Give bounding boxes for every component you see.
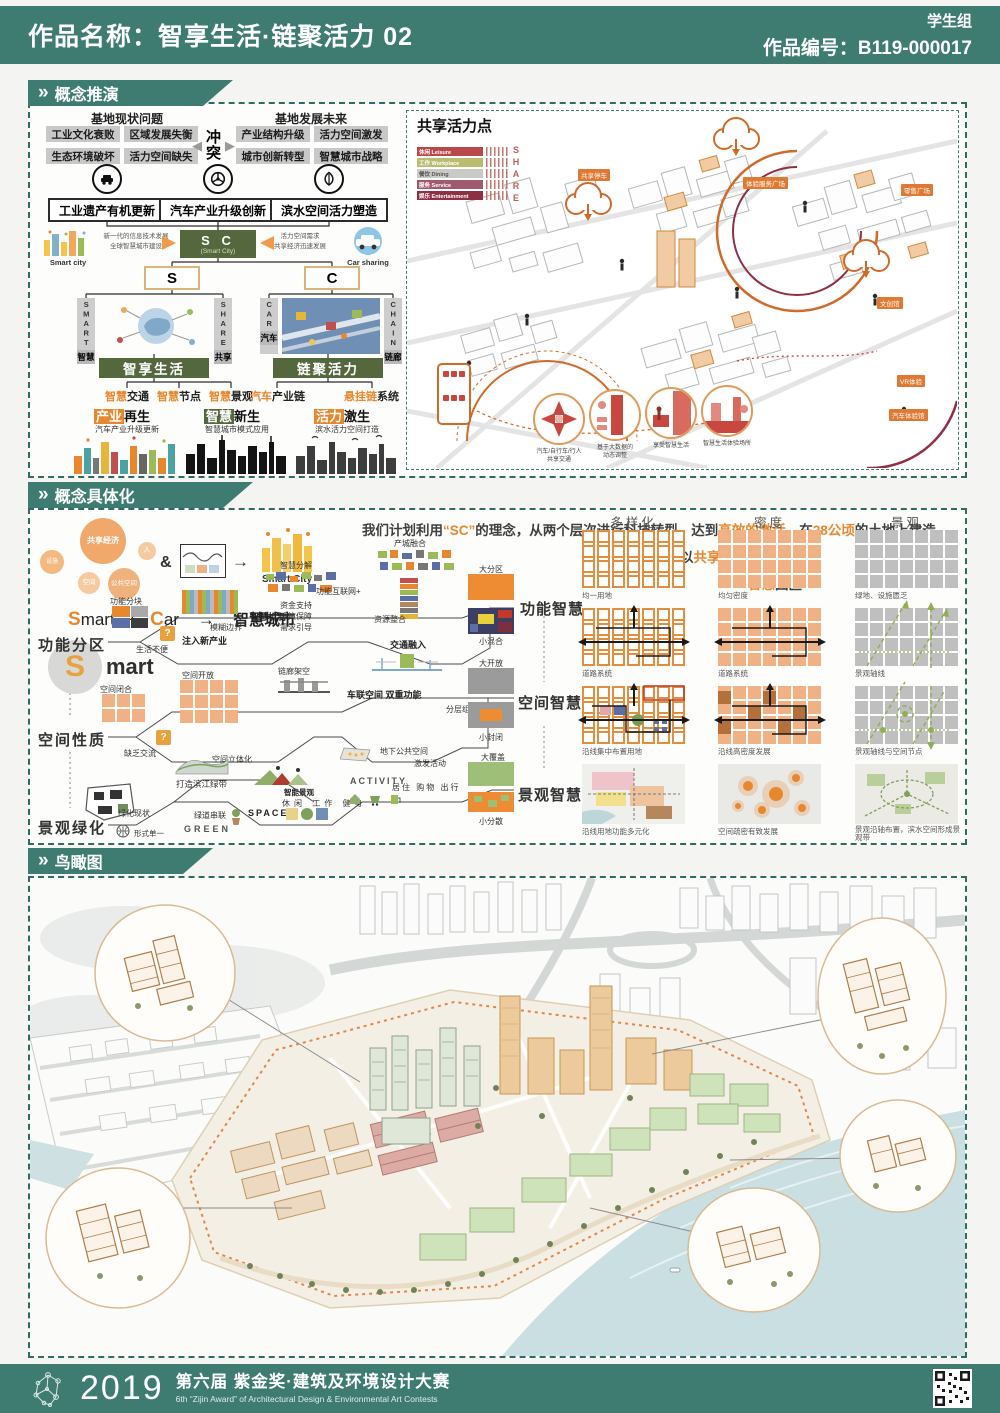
flow-chart-box (180, 544, 226, 578)
matrix-header: 密度 (718, 512, 821, 531)
future-item: 产业结构升级 (236, 126, 310, 142)
bubble: 人 (138, 542, 156, 560)
sc-label: S C (201, 233, 235, 248)
section-banner-concept-deduction: » 概念推演 (28, 80, 233, 106)
result-chip-scatter (468, 792, 514, 812)
legend-swatch: 休闲 Leisure (417, 147, 483, 156)
work-code: 作品编号：B119-000017 (763, 33, 972, 60)
matrix-caption: 景观轴线与空间节点 (855, 748, 965, 756)
zijin-award-logo (26, 1367, 70, 1411)
vignette-big-data (589, 389, 641, 441)
c-letter-box: C (304, 266, 360, 290)
steering-wheel-icon (203, 164, 233, 194)
matrix-caption: 沿线高密度发展 (718, 748, 828, 756)
sc-box: S C (Smart City) (180, 230, 256, 258)
matrix-caption: 景观沿轴布置，滨水空间形成景观带 (855, 826, 965, 843)
flow-node: 绿化现状 (118, 808, 150, 819)
problem-item: 活力空间缺失 (124, 148, 198, 164)
chain-item: 悬挂链系统 (344, 388, 399, 404)
outcome-title: 活力激生 (314, 406, 370, 425)
vignette-waterfront (701, 385, 753, 437)
activity-icons (348, 792, 402, 806)
mosaic-icon (376, 548, 460, 574)
road-overlay (574, 602, 694, 672)
matrix-caption: 空间疏密有致发展 (718, 828, 828, 836)
green-hill-icon (254, 764, 310, 786)
flow-node: 政策保障 (280, 611, 312, 622)
row-label: 空间性质 (38, 729, 106, 750)
arrow-right-icon: → (232, 552, 249, 572)
skyline-black (182, 434, 292, 474)
flow-node: 智能景观 (284, 787, 314, 798)
section-title: 概念推演 (55, 81, 119, 105)
result-chip-caption: 小混合 (468, 636, 514, 647)
qr-code (933, 1369, 972, 1408)
panel-birdview (28, 876, 967, 1358)
footer-year: 2019 (80, 1369, 164, 1408)
outcome-title: 产业再生 (94, 406, 150, 425)
result-chip (468, 702, 514, 728)
matrix-caption: 沿线集中布置用地 (582, 748, 692, 756)
flow-node: 资金支持 (280, 600, 312, 611)
matrix-grid (855, 530, 958, 588)
photo-frame-icon (340, 746, 372, 763)
result-chip (468, 574, 514, 600)
theme-smart-life: 智享生活 (99, 358, 209, 378)
matrix-caption: 均一用地 (582, 592, 692, 600)
car-sharing-illustration (342, 226, 394, 256)
flow-node: 模糊边界 (210, 622, 242, 633)
question-icon: ? (156, 730, 171, 745)
phone-illustration (437, 363, 471, 425)
plan-density (718, 764, 821, 824)
outcome-title: 智慧新生 (204, 406, 260, 425)
conflict-block: ◀ 冲突 ▶ (192, 130, 235, 162)
panel-concept-concrete: 我们计划利用“SC”的理念，从两个层次进行科技转型，达到高效的激活，在28公顷的… (28, 508, 967, 845)
question-icon: ? (160, 626, 175, 641)
skyline-gray (292, 434, 402, 474)
axis-node-overlay (847, 674, 967, 750)
ampersand: & (160, 554, 172, 572)
big-s-rest: mart (106, 654, 154, 680)
s-letter-box: S (144, 266, 200, 290)
pillar-chain: CHAIN 链廊 (384, 298, 402, 354)
result-chip-caption: 小封闭 (468, 732, 514, 743)
closed-grid-icon (102, 694, 145, 722)
future-item: 智慧城市战略 (314, 148, 388, 164)
result-chip-mosaic (468, 608, 514, 634)
legend-row: 娱乐 Entertainment (417, 191, 510, 200)
problem-item: 工业文化衰败 (46, 126, 120, 142)
vignette-caption: 基于大数据的 动态调整 (583, 445, 647, 461)
arrow-right-icon (162, 236, 176, 250)
chevron-icon: » (38, 484, 47, 506)
legend-row: 餐饮 Dining (417, 169, 510, 178)
bubble: 空间 (78, 572, 100, 594)
flow-node: 车联空间 双重功能 (347, 688, 422, 701)
plant-pot-icon (229, 808, 243, 826)
flow-node: 绿道串联 (194, 810, 226, 821)
legend-hatch (486, 147, 510, 156)
flow-node: 注入新产业 (182, 634, 227, 647)
chain-conveyor-illustration (282, 298, 380, 354)
flow-node: 缺乏交流 (124, 748, 156, 759)
flow-node: 地下公共空间 (380, 746, 428, 757)
matrix-caption: 均匀密度 (718, 592, 828, 600)
row-label: 功能分区 (38, 634, 106, 655)
chevron-icon: » (38, 850, 47, 872)
problem-item: 区域发展失衡 (124, 126, 198, 142)
skyline-colorful (72, 434, 182, 474)
pillar-smart: SMART 智慧 (77, 298, 95, 354)
legend-swatch: 工作 Workplace (417, 158, 483, 167)
building-tag: 汽车体验馆 (889, 409, 928, 421)
share-vitality-panel: 共享活力点 休闲 Leisure 工作 Workplace 餐饮 Dining … (406, 110, 959, 470)
concept-flowchart: 基地现状问题 基地发展未来 工业文化衰败 区域发展失衡 生态环境破坏 活力空间缺… (32, 106, 404, 474)
space-icons (286, 808, 328, 820)
transit-section-icon (372, 650, 442, 674)
result-chip (468, 762, 514, 786)
flow-node: 激发活动 (414, 758, 446, 769)
legend-swatch: 餐饮 Dining (417, 169, 483, 178)
vignette-smart-life (645, 387, 697, 439)
legend-row: 工作 Workplace (417, 158, 510, 167)
concept-concrete-content: 我们计划利用“SC”的理念，从两个层次进行科技转型，达到高效的激活，在28公顷的… (32, 512, 963, 841)
arrow-right-icon: ▶ (225, 138, 235, 154)
building-tag: 共享停车 (578, 169, 610, 181)
theme-chain-vitality: 链聚活力 (273, 358, 383, 378)
legend-row: 服务 Service (417, 180, 510, 189)
sc-sublabel: (Smart City) (201, 248, 236, 255)
matrix-header: 景观 (855, 512, 958, 531)
matrix-caption: 沿线用地功能多元化 (582, 828, 692, 836)
smart-city-illustration (40, 228, 94, 256)
open-grid-icon (180, 680, 238, 723)
future-item: 活力空间激发 (314, 126, 388, 142)
legend-swatch: 娱乐 Entertainment (417, 191, 483, 200)
car-icon (92, 164, 122, 194)
flow-node: 功能互联网+ (316, 586, 361, 597)
result-chip-caption: 小分散 (468, 816, 514, 827)
elevated-chain-icon (278, 676, 330, 694)
strategy-box: 汽车产业升级创新 (159, 198, 277, 222)
building-tag: 零售广场 (901, 184, 933, 196)
contest-title: 第六届 紫金奖·建筑及环境设计大赛 (176, 1373, 451, 1392)
quad-icon (112, 606, 148, 628)
bubble: 共享经济 (80, 518, 126, 564)
striped-block-icon (182, 590, 238, 614)
flow-node: 生活不便 (136, 644, 168, 655)
section-title: 概念具体化 (55, 483, 135, 507)
header-right: 学生组 作品编号：B119-000017 (763, 10, 972, 60)
result-label: 空间智慧 (518, 692, 582, 713)
sc-right-note: 活力空间需求 共享经济迅速发展 (262, 232, 338, 252)
smart-item: 智慧交通 (105, 388, 149, 404)
birdview-rendering (30, 878, 965, 1356)
matrix-grid (718, 530, 821, 588)
smart-city-caption: Smart city (38, 258, 98, 267)
group-label: 学生组 (763, 10, 972, 31)
globe-icon (116, 824, 130, 838)
section-banner-birdview: » 鸟瞰图 (28, 848, 213, 874)
flow-node: 形式单一 (134, 828, 164, 839)
pillar-car: CAR 汽车 (260, 298, 278, 354)
vignette-shared-traffic (533, 393, 585, 445)
flow-node: GREEN (184, 824, 231, 834)
plan-diverse (582, 764, 685, 824)
matrix-caption: 道路系统 (718, 670, 828, 678)
result-chip (468, 668, 514, 694)
road-overlay (710, 602, 830, 672)
problem-title: 基地现状问题 (52, 110, 202, 127)
section-title: 鸟瞰图 (55, 849, 103, 873)
section-banner-concept-concrete: » 概念具体化 (28, 482, 253, 508)
smart-item: 智慧节点 (157, 388, 201, 404)
poster-header: 作品名称：智享生活·链聚活力 02 学生组 作品编号：B119-000017 (0, 6, 1000, 64)
poster: 作品名称：智享生活·链聚活力 02 学生组 作品编号：B119-000017 »… (0, 0, 1000, 1413)
work-title: 作品名称：智享生活·链聚活力 02 (28, 17, 413, 53)
legend-hatch (486, 158, 510, 167)
vignette-caption: 汽车/自行车/行人 共享交通 (527, 449, 591, 465)
future-title: 基地发展未来 (236, 110, 386, 127)
activity-row: 居住 购物 出行 (392, 782, 460, 793)
problem-item: 生态环境破坏 (46, 148, 120, 164)
future-item: 城市创新转型 (236, 148, 310, 164)
matrix-grid (582, 530, 685, 588)
legend-side-word: SHARE (511, 145, 521, 203)
building-tag: 体验服务广场 (743, 177, 788, 189)
legend-hatch (486, 191, 510, 200)
plan-landscape (855, 764, 958, 824)
strategy-box: 滨水空间活力塑造 (270, 198, 388, 222)
smart-brain-illustration (104, 298, 208, 354)
riverside-park-icon (174, 754, 230, 776)
matrix-caption: 道路系统 (582, 670, 692, 678)
result-label: 景观智慧 (518, 784, 582, 805)
panel-concept-deduction: 基地现状问题 基地发展未来 工业文化衰败 区域发展失衡 生态环境破坏 活力空间缺… (28, 102, 967, 478)
flow-node: SPACE (248, 808, 288, 818)
smart-item: 智慧景观 (209, 388, 253, 404)
bubble: 设施 (40, 550, 64, 574)
chain-item: 汽车产业链 (250, 388, 305, 404)
legend-row: 休闲 Leisure (417, 147, 510, 156)
strategy-box: 工业遗产有机更新 (48, 198, 166, 222)
building-tag: 文创馆 (877, 297, 903, 309)
matrix-header: 多样化 (582, 512, 685, 531)
legend-hatch (486, 169, 510, 178)
poster-footer: 2019 第六届 紫金奖·建筑及环境设计大赛 6th “Zijin Award”… (0, 1364, 1000, 1413)
density-overlay (710, 680, 830, 750)
vignette-caption: 智慧生活体验场所 (695, 441, 759, 449)
legend-hatch (486, 180, 510, 189)
leaf-icon (314, 164, 344, 194)
vignette-caption: 享受智慧生活 (639, 443, 703, 451)
pillar-share: SHARE 共享 (214, 298, 232, 354)
flow-node: 资源整合 (374, 614, 406, 625)
arrow-left-icon: ◀ (192, 138, 202, 154)
contest-subtitle: 6th “Zijin Award” of Architectural Desig… (176, 1394, 451, 1404)
flow-node: 需求引导 (280, 622, 312, 633)
building-tag: VR体验 (897, 375, 925, 387)
chevron-icon: » (38, 82, 47, 104)
conflict-label: 冲突 (205, 130, 222, 162)
mixed-use-overlay (574, 680, 694, 750)
axon-title: 共享活力点 (417, 115, 492, 136)
axis-overlay (847, 596, 967, 672)
footer-title-block: 第六届 紫金奖·建筑及环境设计大赛 6th “Zijin Award” of A… (176, 1373, 451, 1404)
legend-swatch: 服务 Service (417, 180, 483, 189)
flow-node: 打造滨江绿带 (176, 778, 227, 790)
